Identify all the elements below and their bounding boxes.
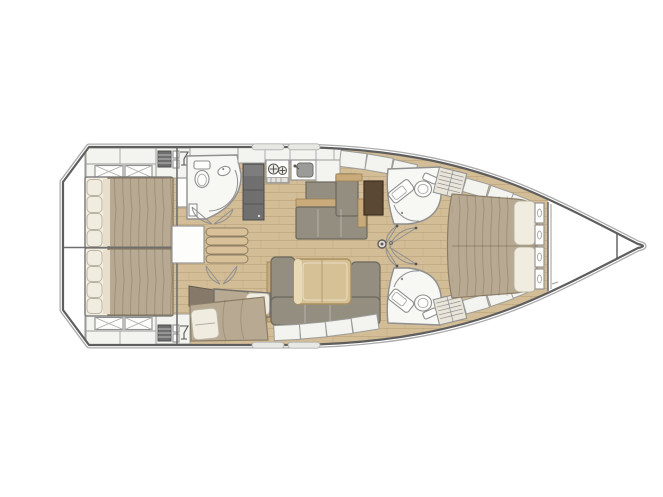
handle [258, 215, 260, 217]
pillow [514, 201, 536, 245]
double-berth-starboard [85, 248, 173, 316]
saloon-dinette [267, 257, 380, 341]
aft-port-cabinet-column [156, 148, 190, 178]
sink-bowl [297, 163, 313, 177]
table-edge [294, 259, 302, 304]
toilet [194, 161, 210, 188]
double-berth-port [85, 177, 173, 248]
blanket-folds [108, 178, 173, 247]
saloon-table [294, 259, 351, 304]
stove [266, 160, 289, 183]
sheet-fold [103, 179, 110, 246]
hinge [415, 227, 418, 230]
pillow [514, 247, 536, 292]
hinge [415, 263, 418, 266]
companionway-steps[interactable] [206, 228, 248, 263]
floorplan-figure [0, 0, 663, 497]
small-locker [173, 325, 179, 332]
aft-stb-locker-band [86, 331, 156, 345]
island-double-berth [448, 194, 545, 298]
companionway [172, 226, 248, 263]
settee-trim-top [336, 174, 362, 181]
sheet-fold [103, 250, 110, 314]
aft-port-locker-band [86, 148, 156, 164]
hinge [396, 265, 399, 268]
aft-stb-cabinet-column [156, 314, 190, 344]
drain [401, 212, 403, 214]
yacht-floorplan [0, 0, 663, 497]
drain [401, 278, 403, 280]
chart-table [364, 181, 383, 215]
engine-access-box [172, 226, 204, 263]
x-front-lockers [95, 318, 152, 330]
blanket-folds [108, 249, 173, 315]
small-locker [173, 160, 179, 168]
interior [62, 147, 658, 345]
single-berth-lower [190, 297, 268, 341]
small-locker [173, 151, 179, 158]
galley-sink [291, 160, 316, 180]
fridge-top [244, 165, 263, 176]
settee-trim-horizontal [296, 199, 336, 207]
x-front-lockers [95, 166, 152, 178]
oven-vent [267, 178, 288, 183]
hinge [396, 225, 399, 228]
refrigerator-unit [243, 164, 264, 220]
small-locker [173, 334, 179, 342]
